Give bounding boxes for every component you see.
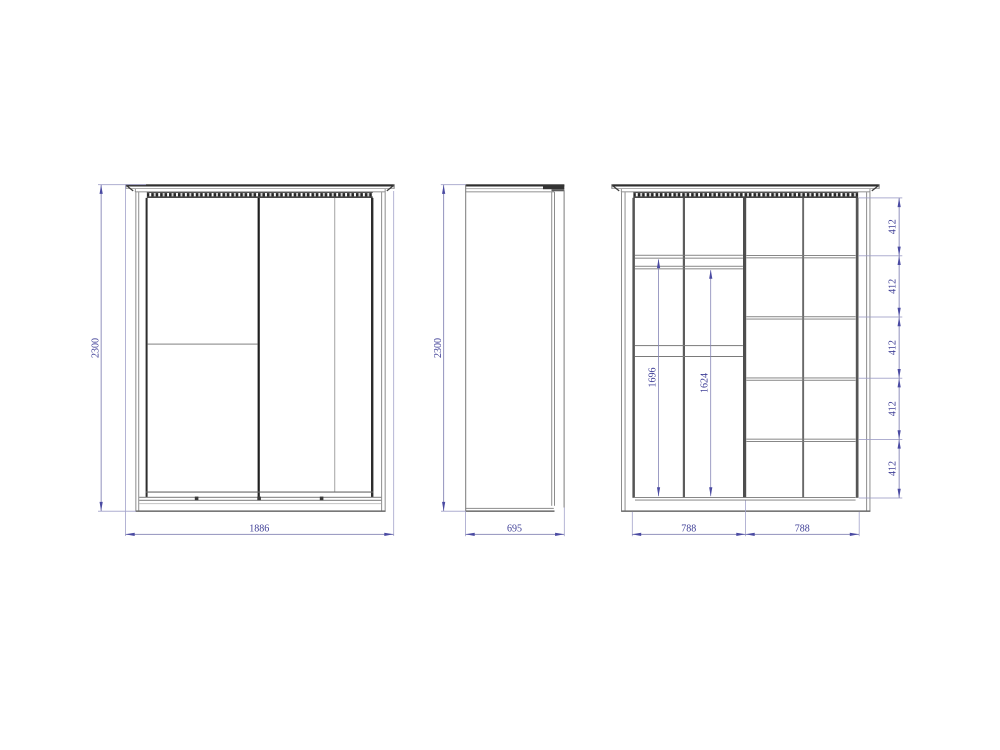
svg-text:412: 412 (887, 340, 898, 355)
svg-text:1886: 1886 (249, 524, 269, 535)
svg-text:412: 412 (887, 219, 898, 234)
svg-text:412: 412 (887, 401, 898, 416)
svg-text:695: 695 (507, 524, 522, 535)
svg-text:412: 412 (887, 279, 898, 294)
svg-text:2300: 2300 (90, 338, 101, 358)
svg-text:1624: 1624 (700, 373, 711, 393)
svg-text:1696: 1696 (648, 368, 659, 388)
svg-text:2300: 2300 (433, 338, 444, 358)
svg-text:412: 412 (887, 461, 898, 476)
svg-text:788: 788 (795, 524, 810, 535)
svg-text:788: 788 (681, 524, 696, 535)
